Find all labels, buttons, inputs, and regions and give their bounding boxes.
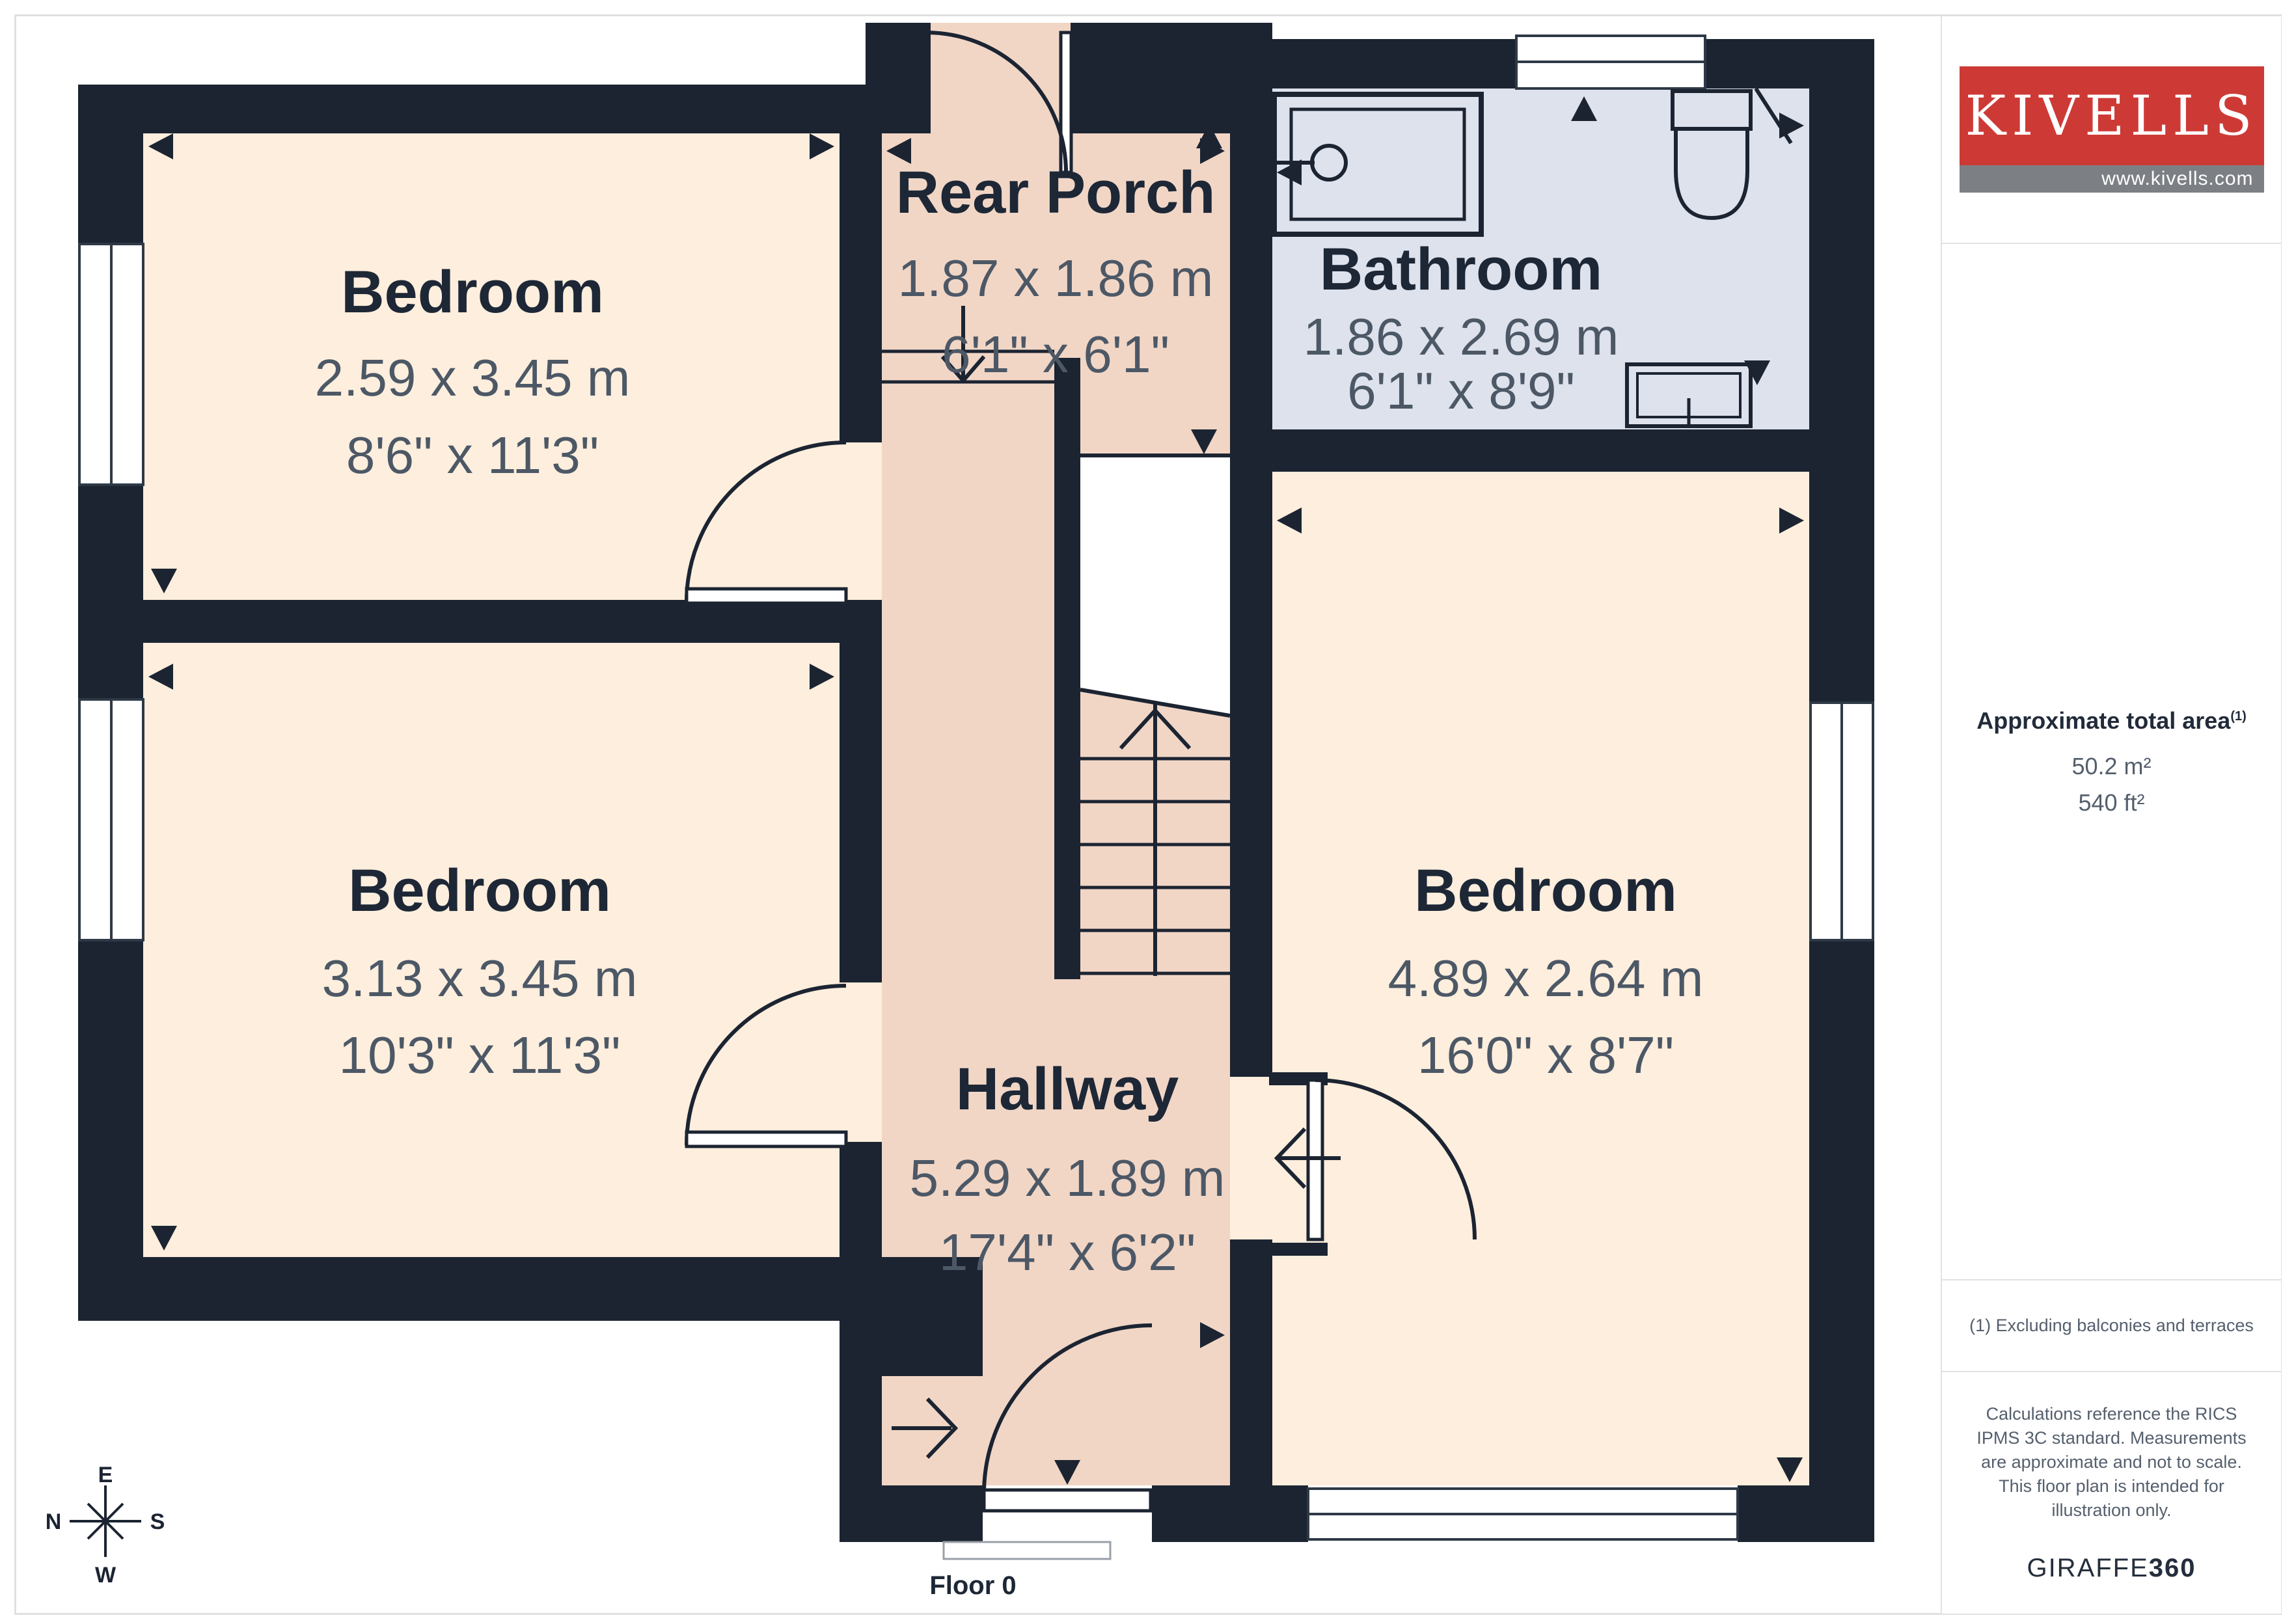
room-dim-metric: 5.29 x 1.89 m — [910, 1149, 1225, 1207]
compass-icon: E N S W — [46, 1463, 165, 1588]
window-right — [1811, 703, 1873, 940]
room-dim-metric: 1.87 x 1.86 m — [898, 249, 1214, 307]
room-dim-metric: 2.59 x 3.45 m — [315, 349, 631, 407]
label-rear-porch: Rear Porch 1.87 x 1.86 m 6'1" x 6'1" — [896, 159, 1216, 383]
compass-w: W — [95, 1563, 116, 1588]
giraffe360-brand: GIRAFFE360 — [2027, 1554, 2196, 1583]
room-dim-metric: 1.86 x 2.69 m — [1304, 308, 1619, 366]
room-title: Rear Porch — [896, 159, 1216, 226]
area-imperial: 540 ft² — [2078, 789, 2144, 817]
compass-e: E — [98, 1463, 113, 1487]
disclaimer-section: Calculations reference the RICS IPMS 3C … — [1942, 1372, 2281, 1612]
info-sidebar: KIVELLS www.kivells.com Approximate tota… — [1941, 16, 2281, 1614]
room-dim-imperial: 6'1" x 6'1" — [942, 325, 1169, 383]
label-bedroom-right: Bedroom 4.89 x 2.64 m 16'0" x 8'7" — [1388, 858, 1704, 1084]
room-dim-imperial: 10'3" x 11'3" — [339, 1026, 621, 1084]
room-dim-imperial: 6'1" x 8'9" — [1347, 362, 1575, 420]
logo-section: KIVELLS www.kivells.com — [1942, 16, 2281, 244]
disclaimer-text: Calculations reference the RICS IPMS 3C … — [1963, 1402, 2260, 1522]
room-dim-metric: 4.89 x 2.64 m — [1388, 949, 1704, 1007]
label-bedroom-bottom-left: Bedroom 3.13 x 3.45 m 10'3" x 11'3" — [322, 858, 638, 1084]
label-hallway: Hallway 5.29 x 1.89 m 17'4" x 6'2" — [910, 1056, 1225, 1281]
area-section: Approximate total area(1) 50.2 m² 540 ft… — [1942, 244, 2281, 1280]
area-heading-sup: (1) — [2230, 709, 2246, 724]
brand-name: GIRAFFE — [2027, 1554, 2148, 1582]
front-step — [944, 1542, 1110, 1559]
label-bedroom-top-left: Bedroom 2.59 x 3.45 m 8'6" x 11'3" — [315, 259, 631, 484]
window-bathroom-top — [1516, 36, 1705, 88]
room-title: Hallway — [956, 1056, 1179, 1122]
window-left-top — [79, 244, 143, 485]
room-title: Bathroom — [1320, 236, 1602, 303]
logo-url-bar: www.kivells.com — [1960, 165, 2264, 193]
label-bathroom: Bathroom 1.86 x 2.69 m 6'1" x 8'9" — [1304, 236, 1619, 420]
footnote-text: (1) Excluding balconies and terraces — [1969, 1316, 2254, 1336]
footnote-section: (1) Excluding balconies and terraces — [1942, 1280, 2281, 1372]
area-metric: 50.2 m² — [2071, 753, 2151, 780]
logo-text: KIVELLS — [1965, 84, 2258, 148]
room-dim-imperial: 16'0" x 8'7" — [1417, 1026, 1674, 1084]
room-title: Bedroom — [341, 259, 604, 325]
area-heading: Approximate total area(1) — [1976, 707, 2247, 735]
compass-s: S — [150, 1509, 165, 1534]
window-bottom — [1308, 1489, 1738, 1539]
compass-n: N — [46, 1509, 62, 1534]
brand-suffix: 360 — [2149, 1554, 2196, 1582]
stair-void — [1080, 455, 1230, 716]
room-dim-metric: 3.13 x 3.45 m — [322, 949, 638, 1007]
kivells-logo: KIVELLS — [1960, 66, 2264, 165]
room-title: Bedroom — [348, 858, 611, 924]
room-dim-imperial: 17'4" x 6'2" — [939, 1223, 1196, 1281]
room-title: Bedroom — [1414, 858, 1677, 924]
floor-label: Floor 0 — [929, 1571, 1016, 1600]
logo-url: www.kivells.com — [2101, 168, 2253, 190]
room-dim-imperial: 8'6" x 11'3" — [346, 426, 599, 484]
window-left-bottom — [79, 699, 143, 940]
